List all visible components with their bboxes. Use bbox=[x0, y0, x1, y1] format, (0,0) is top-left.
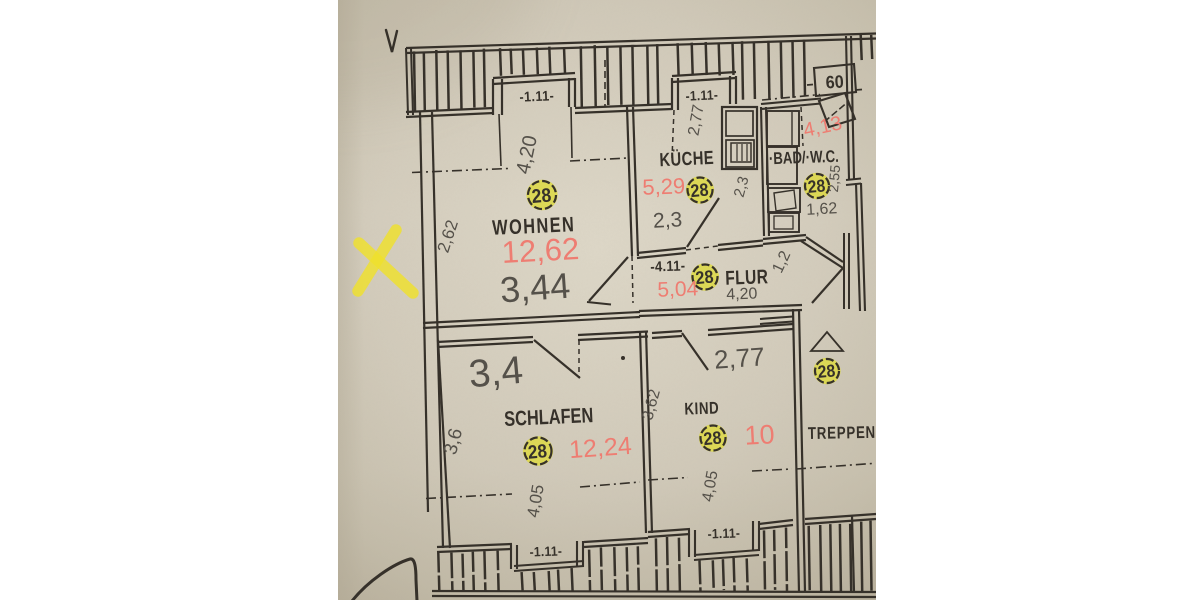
svg-text:-1.11-: -1.11- bbox=[707, 525, 740, 542]
svg-text:28: 28 bbox=[807, 176, 826, 197]
svg-text:-4.11-: -4.11- bbox=[650, 258, 686, 275]
svg-text:-1.11-: -1.11- bbox=[529, 543, 562, 560]
svg-text:28: 28 bbox=[690, 180, 710, 201]
svg-text:28: 28 bbox=[817, 361, 836, 382]
svg-text:2,77: 2,77 bbox=[713, 341, 766, 374]
svg-text:28: 28 bbox=[531, 184, 552, 208]
svg-text:-1.11-: -1.11- bbox=[685, 87, 718, 104]
svg-text:4,20: 4,20 bbox=[726, 285, 758, 303]
svg-text:KIND: KIND bbox=[684, 399, 720, 419]
svg-text:10: 10 bbox=[744, 419, 776, 451]
svg-text:2,3: 2,3 bbox=[652, 208, 682, 232]
svg-text:28: 28 bbox=[703, 428, 723, 449]
svg-text:5,29: 5,29 bbox=[642, 173, 686, 199]
svg-text:12,24: 12,24 bbox=[568, 432, 632, 464]
svg-text:3,44: 3,44 bbox=[499, 265, 572, 311]
svg-text:2,55: 2,55 bbox=[825, 164, 843, 193]
svg-text:3,4: 3,4 bbox=[467, 349, 525, 397]
svg-text:TREPPEN: TREPPEN bbox=[808, 423, 876, 443]
svg-text:28: 28 bbox=[527, 440, 548, 463]
svg-text:-1.11-: -1.11- bbox=[519, 88, 555, 105]
svg-text:1,62: 1,62 bbox=[806, 200, 838, 219]
svg-text:5,04: 5,04 bbox=[657, 277, 699, 301]
svg-text:SCHLAFEN: SCHLAFEN bbox=[504, 403, 594, 430]
svg-text:KÜCHE: KÜCHE bbox=[659, 147, 714, 171]
svg-text:60: 60 bbox=[825, 72, 844, 93]
